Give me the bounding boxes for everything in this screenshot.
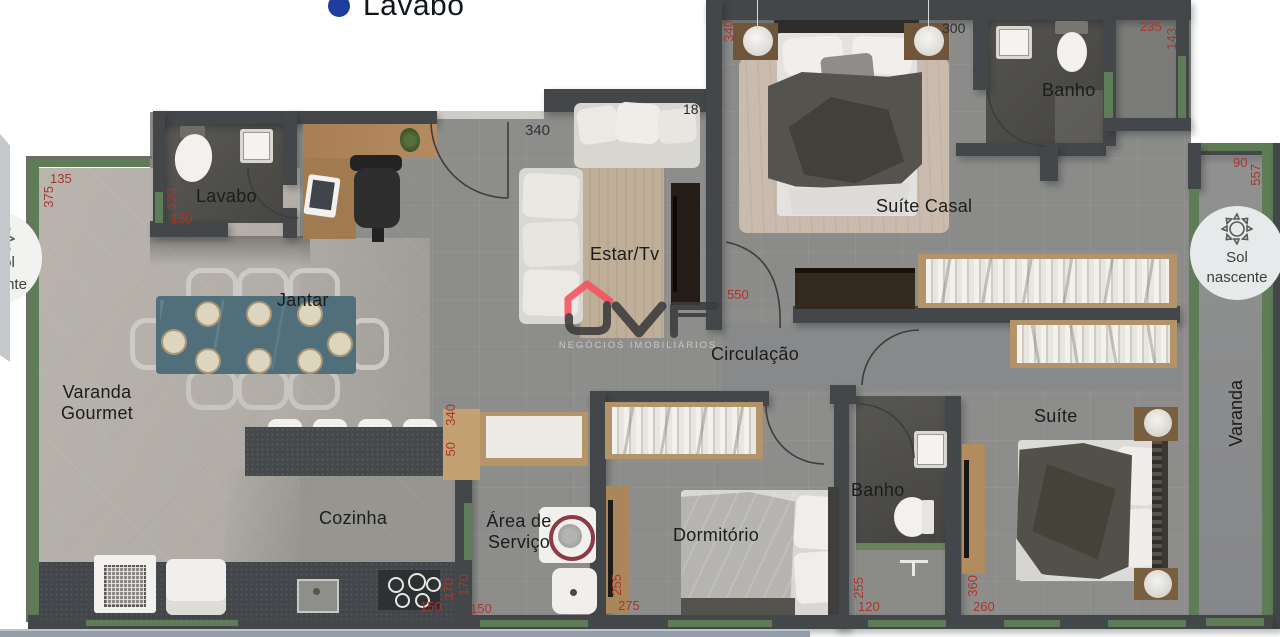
svg-text:NEGÓCIOS IMOBILIÁRIOS: NEGÓCIOS IMOBILIÁRIOS xyxy=(559,340,717,351)
